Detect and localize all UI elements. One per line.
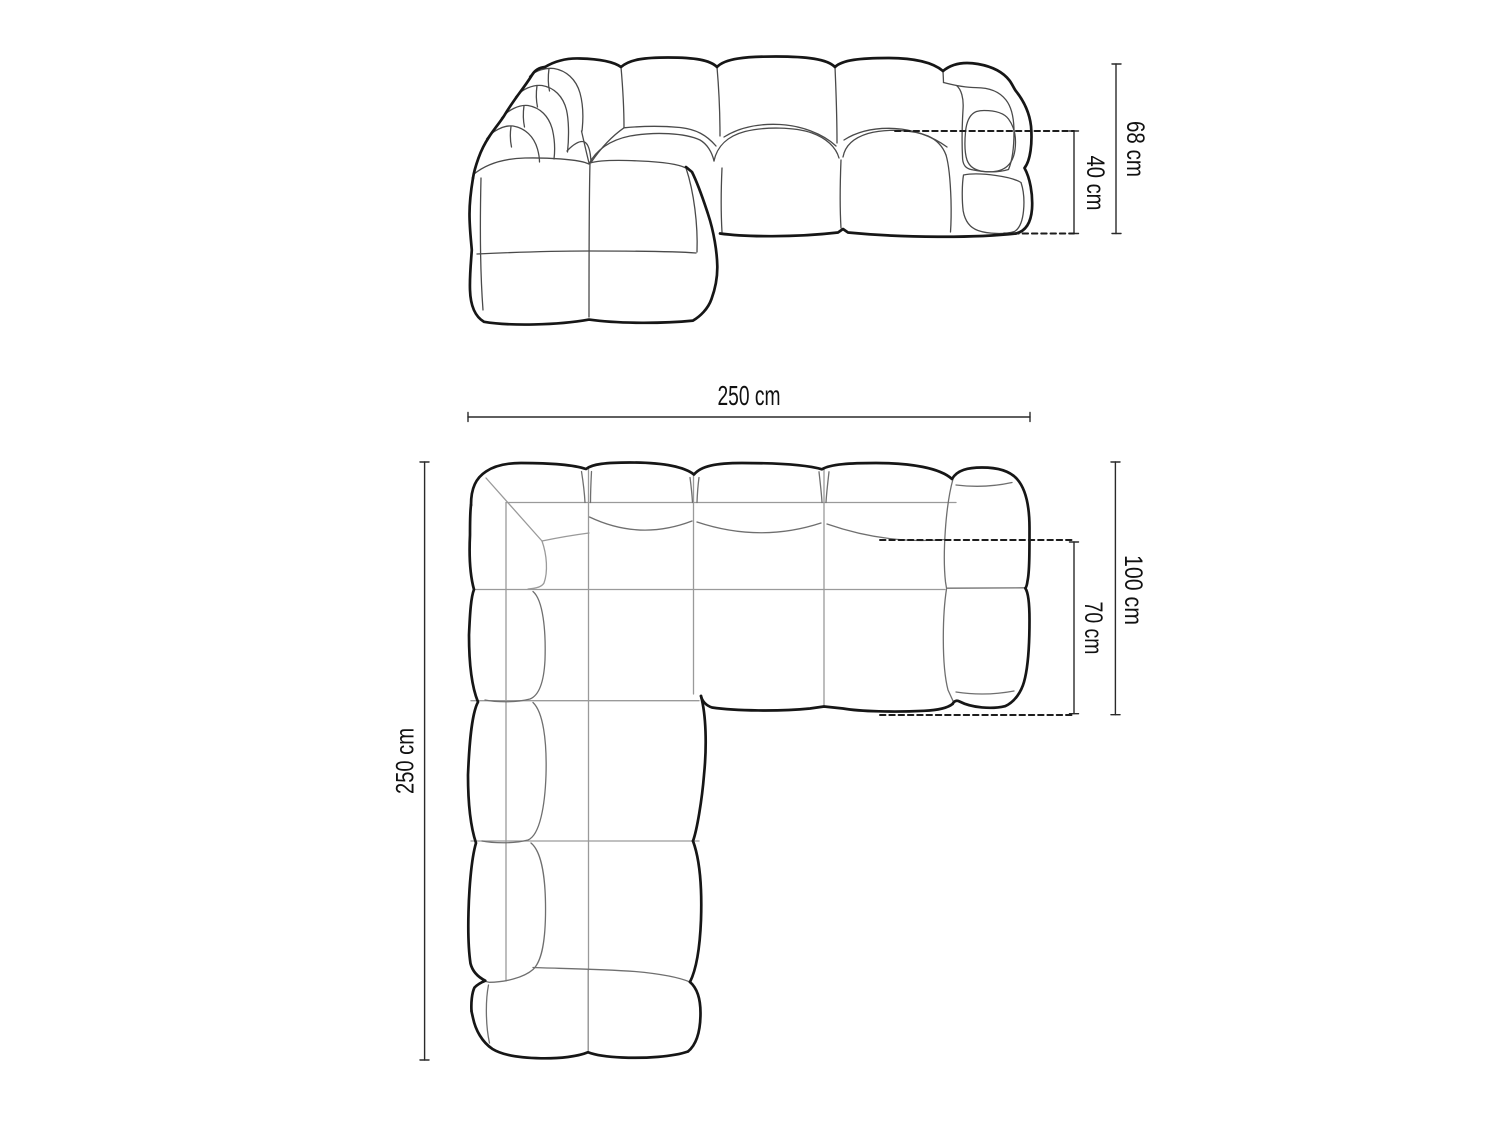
svg-text:70 cm: 70 cm	[1079, 602, 1107, 655]
svg-text:40 cm: 40 cm	[1081, 156, 1109, 211]
svg-text:250 cm: 250 cm	[718, 380, 781, 411]
svg-text:250 cm: 250 cm	[392, 728, 420, 794]
svg-text:68 cm: 68 cm	[1121, 121, 1149, 177]
svg-text:100 cm: 100 cm	[1119, 555, 1147, 625]
